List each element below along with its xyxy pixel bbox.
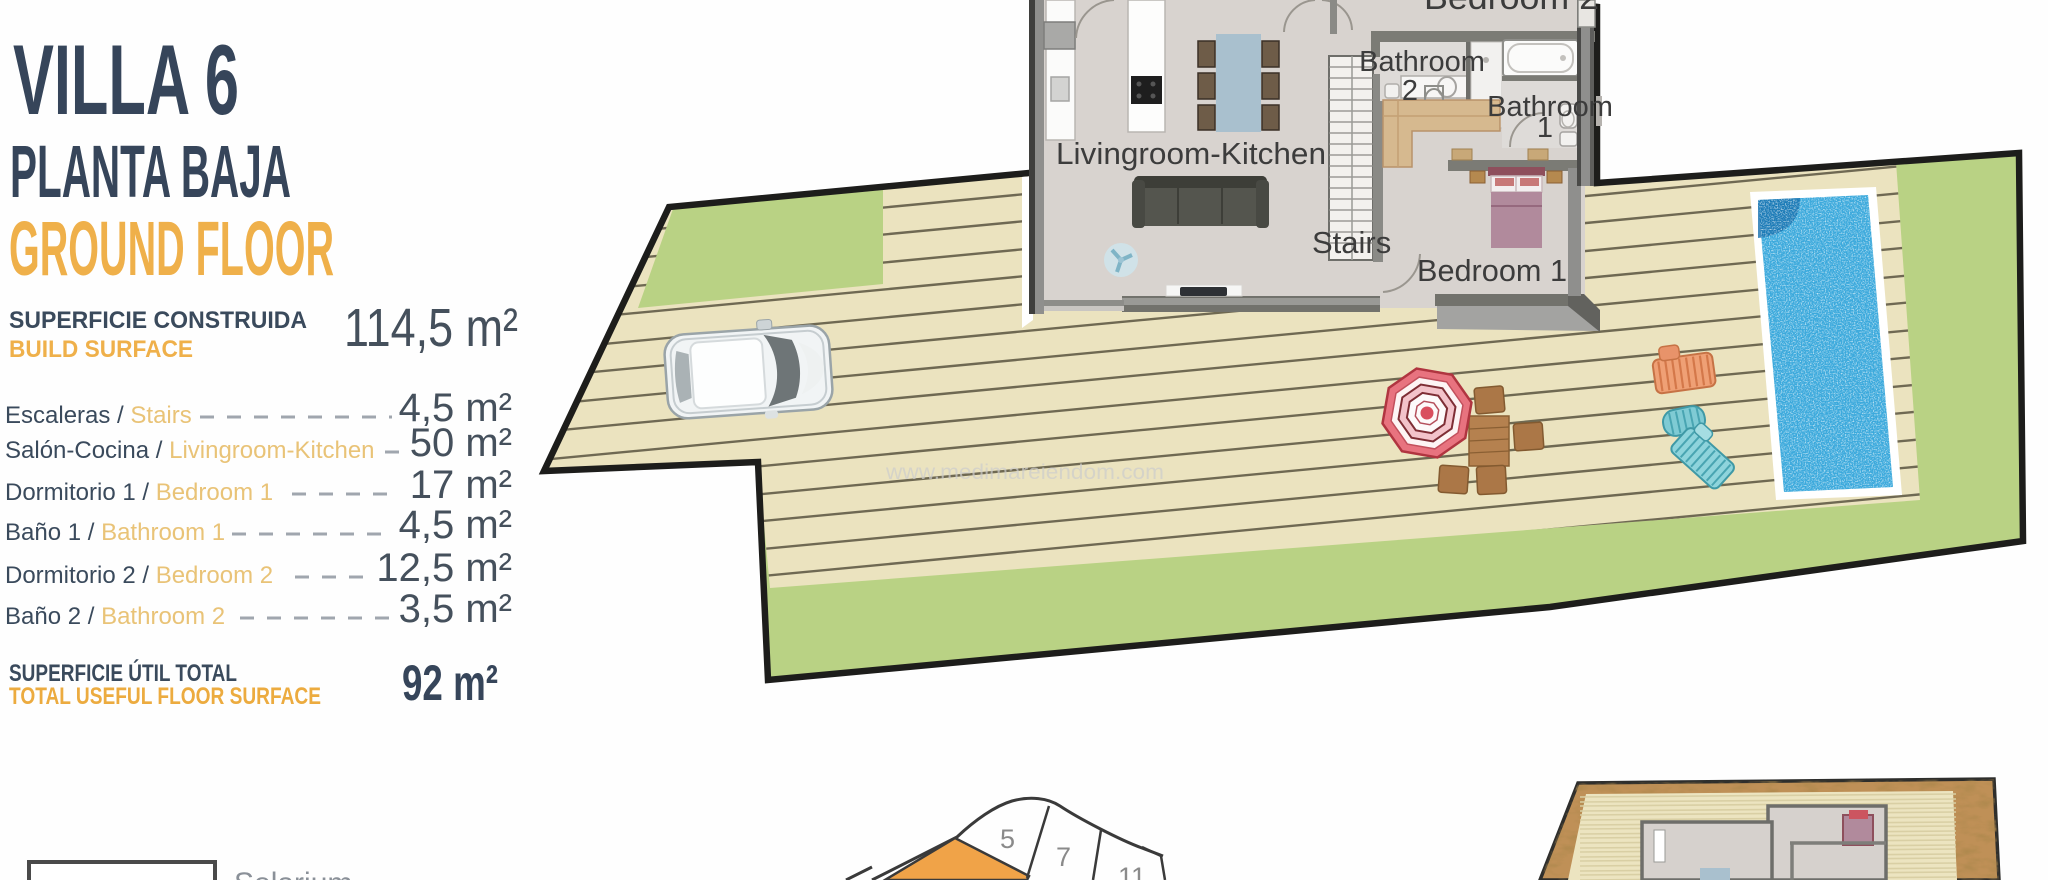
svg-text:SUPERFICIE CONSTRUIDA: SUPERFICIE CONSTRUIDA xyxy=(9,307,307,334)
svg-text:Livingroom-Kitchen: Livingroom-Kitchen xyxy=(1056,136,1326,171)
svg-text:Dormitorio 2 / Bedroom 2: Dormitorio 2 / Bedroom 2 xyxy=(5,562,273,589)
svg-text:Bathroom: Bathroom xyxy=(1359,46,1485,78)
svg-text:50 m²: 50 m² xyxy=(410,421,512,465)
svg-text:Baño 1 / Bathroom 1: Baño 1 / Bathroom 1 xyxy=(5,519,225,546)
svg-text:Stairs: Stairs xyxy=(1312,225,1391,260)
svg-text:VILLA 6: VILLA 6 xyxy=(13,24,239,135)
svg-text:Bedroom 1: Bedroom 1 xyxy=(1417,253,1567,288)
svg-text:Bedroom 2: Bedroom 2 xyxy=(1424,0,1599,17)
svg-text:11: 11 xyxy=(1118,862,1146,880)
svg-text:GROUND FLOOR: GROUND FLOOR xyxy=(9,206,334,292)
svg-text:Baño 2 / Bathroom 2: Baño 2 / Bathroom 2 xyxy=(5,603,225,630)
svg-text:7: 7 xyxy=(1056,842,1071,872)
svg-text:PLANTA BAJA: PLANTA BAJA xyxy=(10,130,291,213)
svg-text:www.medimareiendom.com: www.medimareiendom.com xyxy=(885,461,1164,484)
svg-text:17 m²: 17 m² xyxy=(410,463,512,507)
svg-text:5: 5 xyxy=(1000,824,1015,854)
svg-text:Salón-Cocina / Livingroom-Kitc: Salón-Cocina / Livingroom-Kitchen xyxy=(5,437,375,464)
svg-text:Dormitorio 1 / Bedroom 1: Dormitorio 1 / Bedroom 1 xyxy=(5,479,273,506)
svg-text:92 m²: 92 m² xyxy=(402,655,498,711)
svg-text:2: 2 xyxy=(1402,75,1418,107)
svg-text:1: 1 xyxy=(1537,112,1553,144)
svg-text:114,5 m²: 114,5 m² xyxy=(344,298,518,358)
svg-text:BUILD SURFACE: BUILD SURFACE xyxy=(9,336,193,363)
svg-text:Escaleras / Stairs: Escaleras / Stairs xyxy=(5,402,192,429)
svg-text:4,5 m²: 4,5 m² xyxy=(399,503,512,547)
svg-text:3,5 m²: 3,5 m² xyxy=(399,587,512,631)
svg-text:12,5 m²: 12,5 m² xyxy=(376,546,512,590)
svg-text:Solarium: Solarium xyxy=(234,867,352,880)
svg-text:TOTAL USEFUL FLOOR SURFACE: TOTAL USEFUL FLOOR SURFACE xyxy=(9,683,321,710)
